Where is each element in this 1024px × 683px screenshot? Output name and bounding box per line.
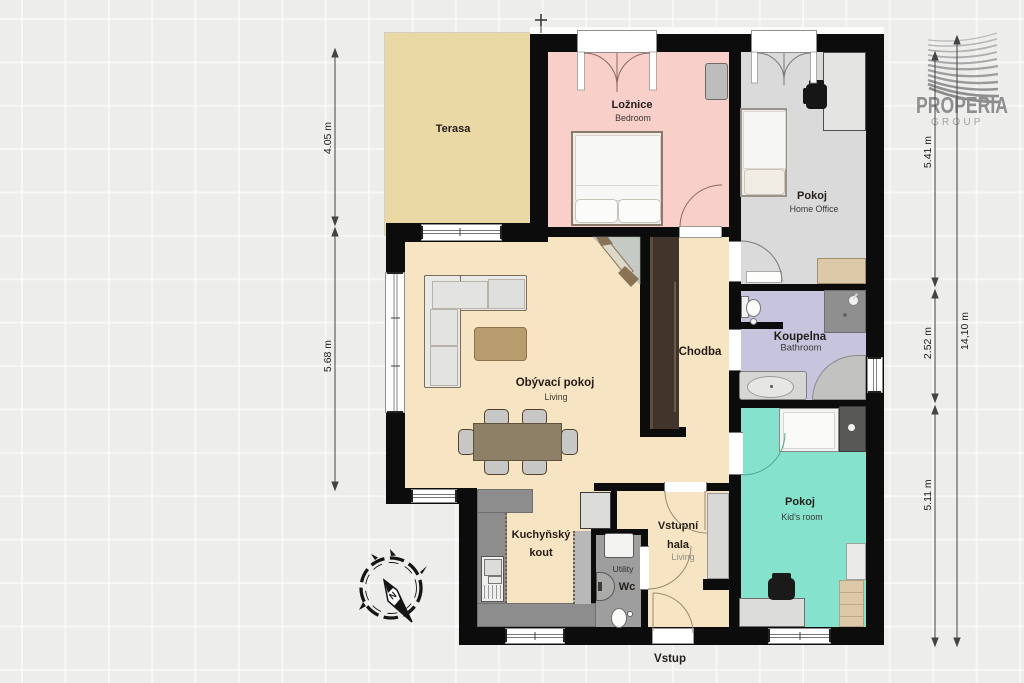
svg-text:14,10 m: 14,10 m [959,312,971,350]
svg-text:5.11 m: 5.11 m [922,479,934,511]
svg-text:5.68 m: 5.68 m [322,340,334,372]
svg-text:PROPERIA: PROPERIA [916,92,1008,118]
svg-text:4.05 m: 4.05 m [322,122,334,154]
svg-text:5.41 m: 5.41 m [922,136,934,168]
svg-text:2.52 m: 2.52 m [922,327,934,359]
